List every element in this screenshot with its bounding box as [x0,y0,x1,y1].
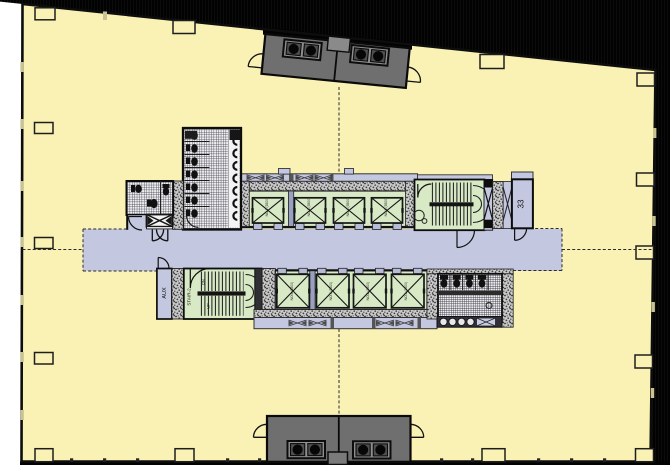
svg-text:NO.6 (3500): NO.6 (3500) [290,282,294,301]
svg-text:AUX: AUX [162,287,168,299]
svg-text:DN: DN [202,279,206,285]
svg-text:NO.9 (3500): NO.9 (3500) [404,282,408,301]
svg-text:NO.7 (3500): NO.7 (3500) [329,282,333,301]
svg-text:STAIR-2: STAIR-2 [187,288,192,306]
svg-text:NO.2 (3500): NO.2 (3500) [265,198,269,217]
svg-text:NO.5 (3500): NO.5 (3500) [384,198,388,217]
svg-text:33: 33 [517,199,526,208]
svg-text:NO.3 (3500): NO.3 (3500) [307,198,311,217]
svg-text:NO.8 (3500): NO.8 (3500) [366,282,370,301]
svg-text:NO.4 (3500): NO.4 (3500) [346,198,350,217]
svg-text:UP: UP [207,303,211,309]
